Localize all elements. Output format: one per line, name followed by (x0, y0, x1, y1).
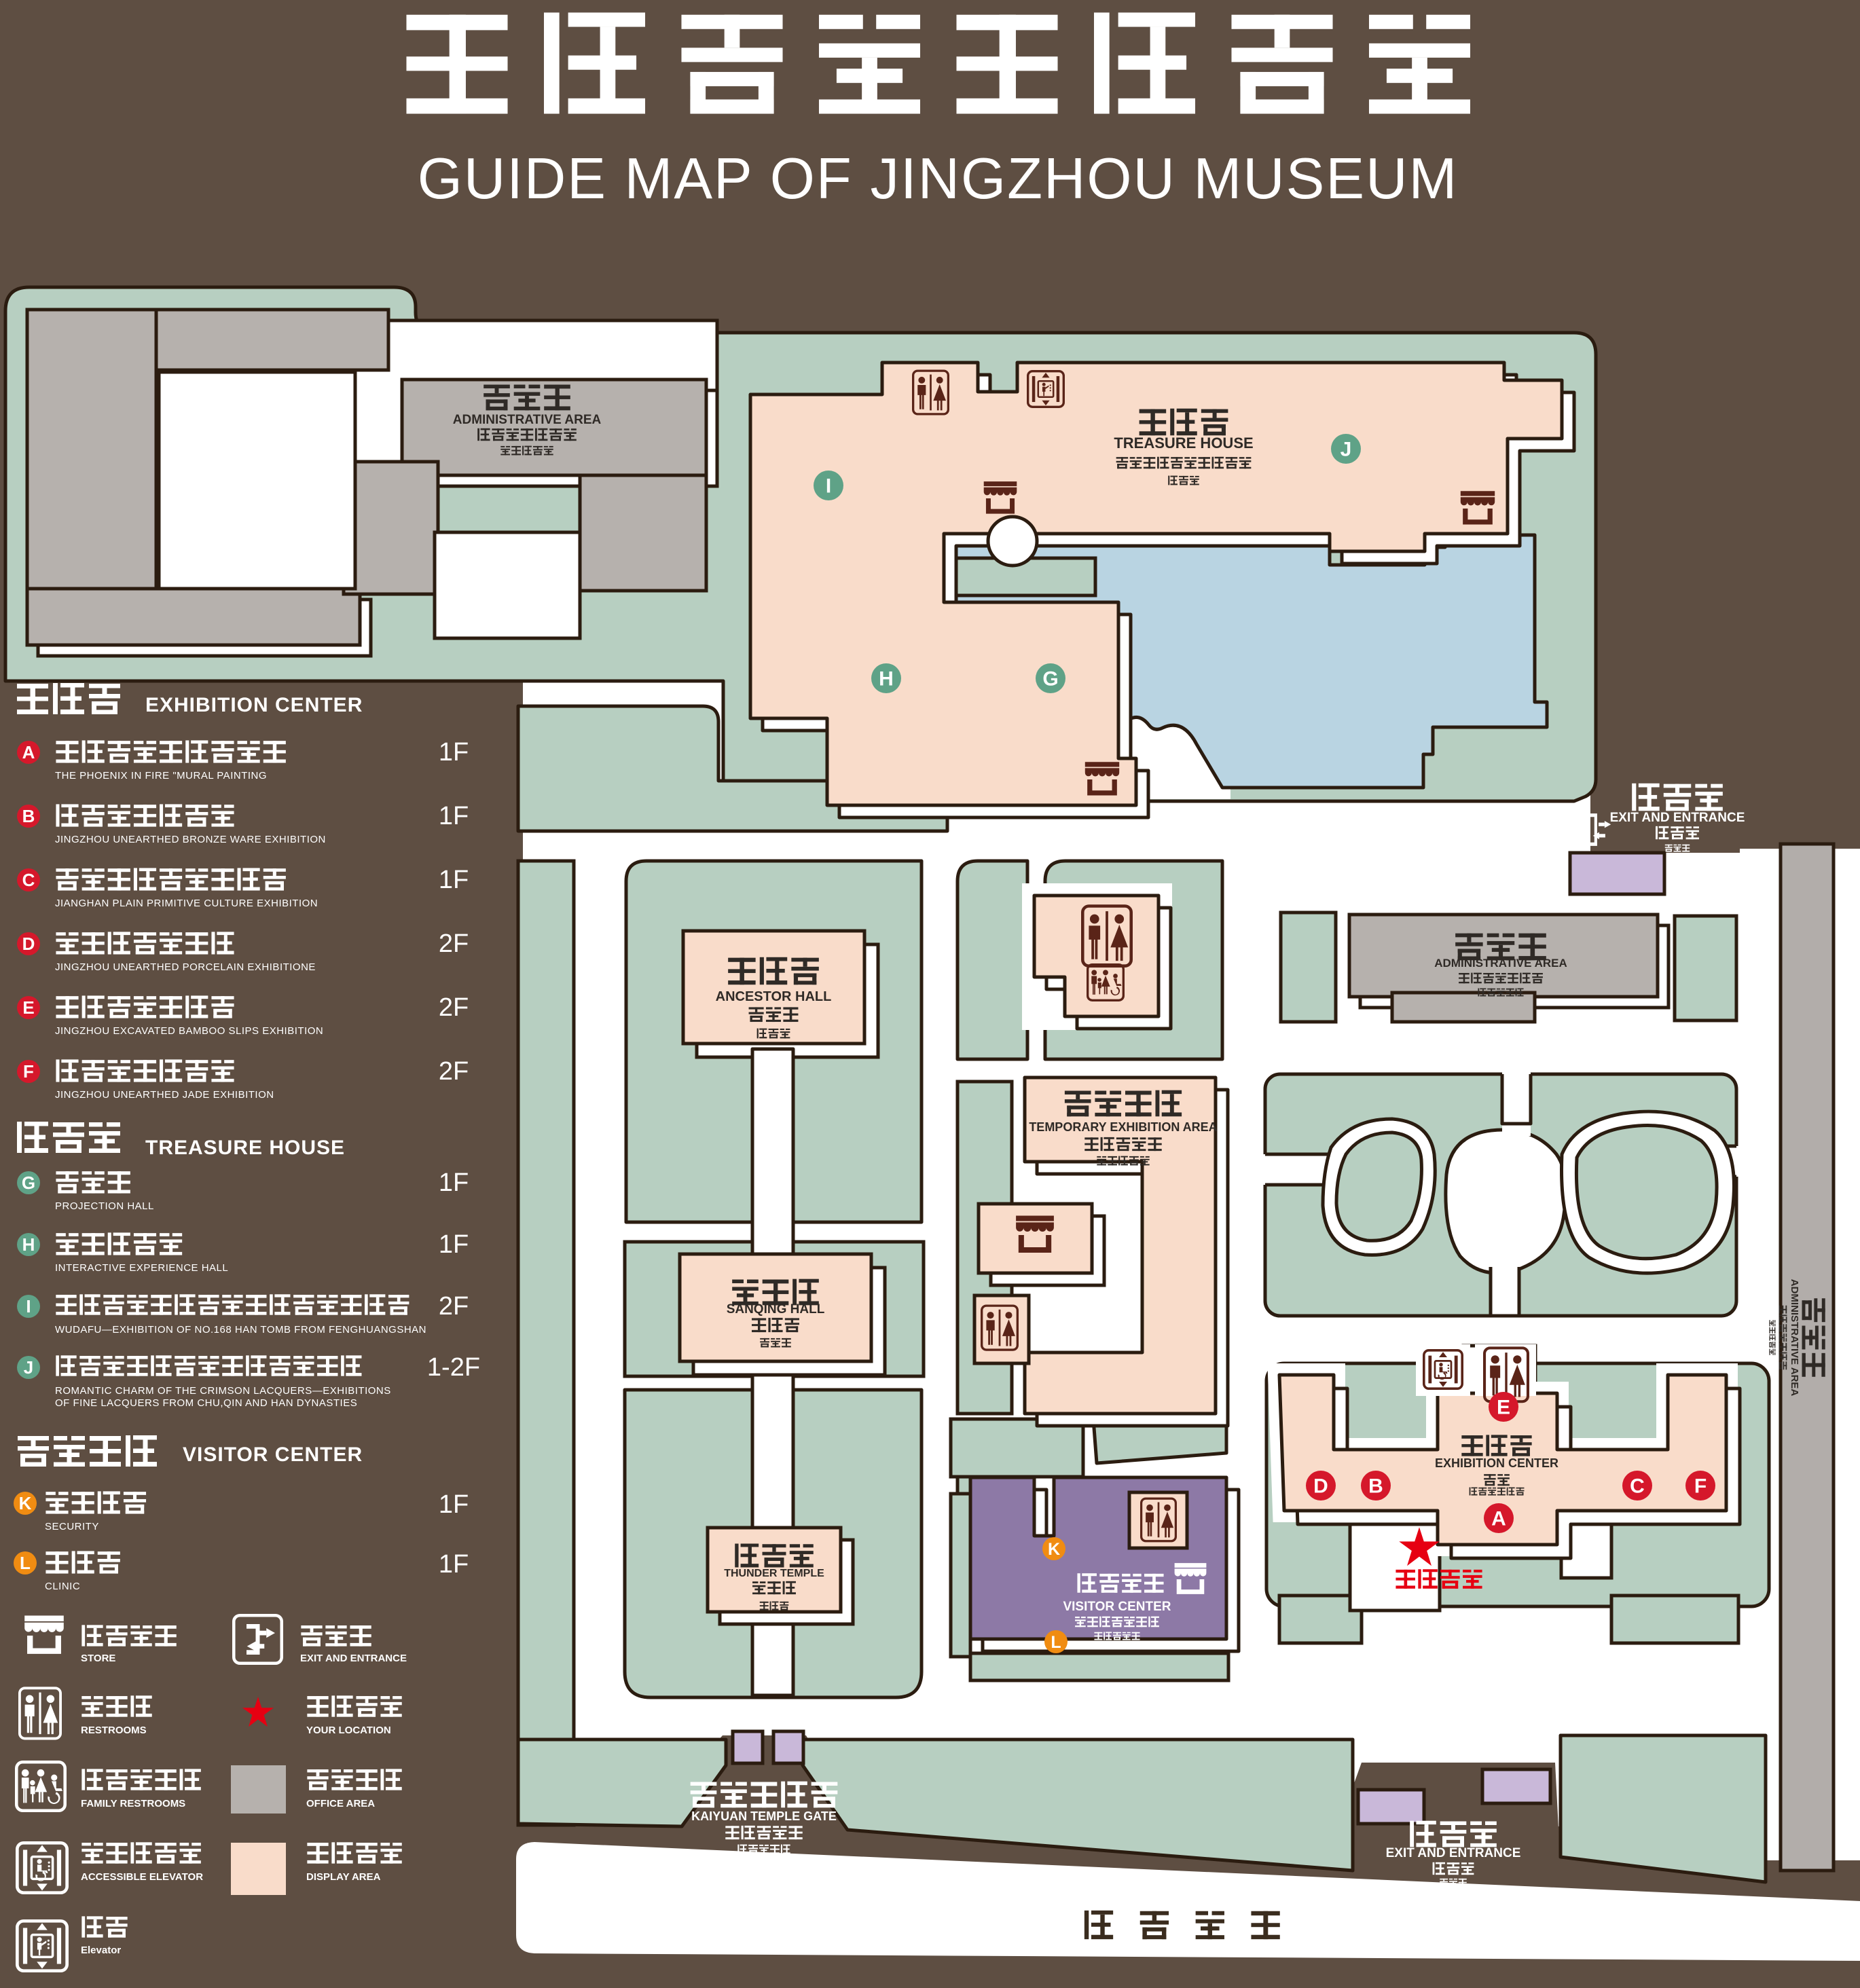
svg-text:B: B (1368, 1475, 1383, 1498)
svg-text:EXHIBITION CENTER: EXHIBITION CENTER (1435, 1456, 1558, 1470)
svg-text:I: I (26, 1296, 31, 1317)
svg-text:EXIT AND ENTRANCE: EXIT AND ENTRANCE (1386, 1846, 1521, 1860)
svg-text:VISITOR CENTER: VISITOR CENTER (1063, 1600, 1171, 1614)
svg-text:PROJECTION HALL: PROJECTION HALL (55, 1200, 154, 1212)
svg-text:INTERACTIVE EXPERIENCE HALL: INTERACTIVE EXPERIENCE HALL (55, 1262, 228, 1274)
svg-text:1F: 1F (439, 802, 469, 830)
svg-text:A: A (1491, 1508, 1506, 1530)
svg-text:1F: 1F (439, 1230, 469, 1259)
svg-text:ADMINISTRATIVE AREA: ADMINISTRATIVE AREA (1434, 957, 1567, 970)
svg-text:G: G (1042, 668, 1058, 691)
svg-text:C: C (22, 870, 35, 890)
svg-text:1F: 1F (439, 866, 469, 894)
svg-text:ANCESTOR HALL: ANCESTOR HALL (716, 989, 832, 1004)
svg-text:L: L (1051, 1633, 1061, 1652)
svg-text:E: E (22, 997, 34, 1018)
svg-text:F: F (1694, 1475, 1707, 1498)
svg-text:ADMINISTRATIVE AREA: ADMINISTRATIVE AREA (1789, 1279, 1800, 1397)
svg-text:YOUR LOCATION: YOUR LOCATION (306, 1725, 391, 1736)
svg-text:OFFICE AREA: OFFICE AREA (306, 1798, 375, 1809)
svg-text:JIANGHAN PLAIN PRIMITIVE CULTU: JIANGHAN PLAIN PRIMITIVE CULTURE EXHIBIT… (55, 898, 318, 909)
svg-text:1F: 1F (439, 1490, 469, 1519)
svg-text:2F: 2F (439, 929, 469, 958)
svg-text:JINGZHOU EXCAVATED BAMBOO SLIP: JINGZHOU EXCAVATED BAMBOO SLIPS EXHIBITI… (55, 1025, 323, 1037)
svg-text:FAMILY RESTROOMS: FAMILY RESTROOMS (81, 1798, 185, 1809)
svg-text:VISITOR CENTER: VISITOR CENTER (183, 1443, 363, 1466)
svg-text:D: D (1313, 1475, 1328, 1498)
svg-text:1F: 1F (439, 1550, 469, 1579)
svg-text:EXIT AND ENTRANCE: EXIT AND ENTRANCE (300, 1653, 407, 1664)
svg-text:TREASURE HOUSE: TREASURE HOUSE (1114, 435, 1253, 452)
svg-text:JINGZHOU UNEARTHED BRONZE WARE: JINGZHOU UNEARTHED BRONZE WARE EXHIBITIO… (55, 834, 326, 845)
svg-text:J: J (1341, 439, 1352, 461)
svg-text:TREASURE HOUSE: TREASURE HOUSE (145, 1137, 345, 1159)
svg-text:2F: 2F (439, 1292, 469, 1321)
svg-text:H: H (879, 668, 894, 691)
svg-text:B: B (22, 806, 35, 826)
svg-text:2F: 2F (439, 993, 469, 1022)
svg-text:CLINIC: CLINIC (45, 1581, 80, 1592)
svg-text:ROMANTIC CHARM OF THE CRIMSON: ROMANTIC CHARM OF THE CRIMSON LACQUERS—E… (55, 1385, 391, 1397)
svg-text:K: K (1048, 1540, 1060, 1559)
svg-text:J: J (24, 1357, 33, 1378)
svg-text:JINGZHOU UNEARTHED JADE EXHIBI: JINGZHOU UNEARTHED JADE EXHIBITION (55, 1089, 274, 1101)
svg-text:H: H (22, 1234, 35, 1255)
svg-text:EXIT AND ENTRANCE: EXIT AND ENTRANCE (1610, 811, 1745, 825)
svg-text:THUNDER TEMPLE: THUNDER TEMPLE (724, 1568, 824, 1579)
svg-text:G: G (22, 1173, 35, 1193)
svg-text:GUIDE MAP OF JINGZHOU MUSEUM: GUIDE MAP OF JINGZHOU MUSEUM (418, 147, 1459, 211)
svg-text:L: L (20, 1553, 31, 1573)
svg-text:2F: 2F (439, 1057, 469, 1086)
svg-text:F: F (23, 1061, 34, 1082)
svg-text:Elevator: Elevator (81, 1945, 121, 1956)
svg-text:C: C (1630, 1475, 1645, 1498)
svg-text:THE PHOENIX IN FIRE "MURAL PAI: THE PHOENIX IN FIRE "MURAL PAINTING (55, 770, 267, 781)
svg-text:E: E (1497, 1397, 1510, 1419)
svg-text:TEMPORARY EXHIBITION AREA: TEMPORARY EXHIBITION AREA (1029, 1120, 1217, 1134)
svg-text:K: K (19, 1493, 32, 1513)
svg-text:DISPLAY AREA: DISPLAY AREA (306, 1871, 381, 1883)
svg-text:D: D (22, 934, 35, 954)
svg-text:JINGZHOU UNEARTHED PORCELAIN E: JINGZHOU UNEARTHED PORCELAIN EXHIBITIONE (55, 961, 316, 973)
svg-text:WUDAFU—EXHIBITION OF NO.168 HA: WUDAFU—EXHIBITION OF NO.168 HAN TOMB FRO… (55, 1324, 426, 1336)
svg-text:EXHIBITION CENTER: EXHIBITION CENTER (145, 694, 363, 716)
svg-text:SECURITY: SECURITY (45, 1521, 99, 1532)
svg-text:ACCESSIBLE ELEVATOR: ACCESSIBLE ELEVATOR (81, 1871, 203, 1883)
svg-text:OF FINE LACQUERS FROM CHU,QIN: OF FINE LACQUERS FROM CHU,QIN AND HAN DY… (55, 1397, 357, 1409)
svg-text:ADMINISTRATIVE AREA: ADMINISTRATIVE AREA (453, 413, 602, 427)
svg-text:1F: 1F (439, 738, 469, 767)
svg-text:A: A (22, 742, 35, 762)
svg-text:KAIYUAN TEMPLE GATE: KAIYUAN TEMPLE GATE (691, 1809, 837, 1823)
svg-text:STORE: STORE (81, 1653, 115, 1664)
svg-text:RESTROOMS: RESTROOMS (81, 1725, 147, 1736)
svg-text:1-2F: 1-2F (427, 1353, 480, 1382)
svg-text:SANQING HALL: SANQING HALL (727, 1302, 825, 1317)
svg-text:1F: 1F (439, 1168, 469, 1197)
svg-text:I: I (826, 475, 831, 498)
